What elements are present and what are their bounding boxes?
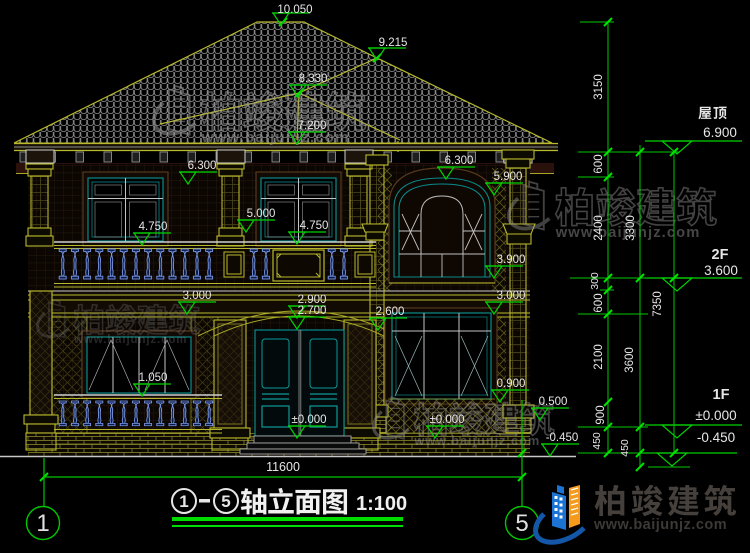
svg-text:±0.000: ±0.000 — [291, 414, 326, 426]
svg-text:5.000: 5.000 — [247, 208, 276, 220]
svg-text:3300: 3300 — [625, 215, 637, 241]
svg-text:1: 1 — [36, 510, 49, 537]
svg-text:1F: 1F — [713, 387, 730, 403]
svg-text:±0.000: ±0.000 — [695, 408, 736, 423]
svg-text:3600: 3600 — [624, 347, 636, 373]
svg-text:450: 450 — [591, 432, 603, 450]
svg-text:600: 600 — [593, 154, 605, 173]
svg-text:2.700: 2.700 — [298, 305, 327, 317]
svg-text:1:100: 1:100 — [356, 493, 407, 515]
svg-text:-0.450: -0.450 — [546, 432, 579, 444]
svg-text:-0.450: -0.450 — [697, 430, 735, 445]
svg-text:8.330: 8.330 — [299, 73, 328, 85]
svg-text:9.215: 9.215 — [379, 37, 408, 49]
svg-text:5.900: 5.900 — [494, 171, 523, 183]
svg-text:4.750: 4.750 — [139, 221, 168, 233]
svg-text:6.900: 6.900 — [703, 125, 737, 140]
svg-text:3.000: 3.000 — [183, 290, 212, 302]
svg-text:5: 5 — [515, 510, 528, 537]
svg-text:1: 1 — [179, 492, 188, 511]
svg-text:±0.000: ±0.000 — [429, 414, 464, 426]
svg-text:3.900: 3.900 — [497, 254, 526, 266]
svg-text:7.200: 7.200 — [298, 120, 327, 132]
svg-text:5: 5 — [221, 492, 230, 511]
svg-text:2F: 2F — [712, 247, 729, 263]
svg-text:450: 450 — [619, 439, 631, 457]
svg-text:2100: 2100 — [593, 344, 605, 370]
svg-text:3.600: 3.600 — [704, 263, 738, 278]
svg-text:300: 300 — [589, 272, 601, 290]
svg-text:3.000: 3.000 — [497, 290, 526, 302]
svg-text:www.baijunjz.com: www.baijunjz.com — [593, 517, 727, 533]
svg-text:0.500: 0.500 — [539, 396, 568, 408]
svg-text:900: 900 — [595, 405, 607, 424]
svg-text:6.300: 6.300 — [445, 155, 474, 167]
svg-text:2.600: 2.600 — [376, 306, 405, 318]
svg-text:600: 600 — [593, 293, 605, 312]
svg-text:4.750: 4.750 — [300, 220, 329, 232]
svg-text:2400: 2400 — [593, 215, 605, 241]
svg-text:1.050: 1.050 — [139, 372, 168, 384]
svg-text:0.900: 0.900 — [497, 378, 526, 390]
svg-text:7350: 7350 — [652, 291, 664, 317]
svg-text:11600: 11600 — [266, 460, 300, 474]
svg-text:10.050: 10.050 — [277, 4, 312, 16]
svg-text:6.300: 6.300 — [188, 160, 217, 172]
svg-text:3150: 3150 — [593, 74, 605, 100]
